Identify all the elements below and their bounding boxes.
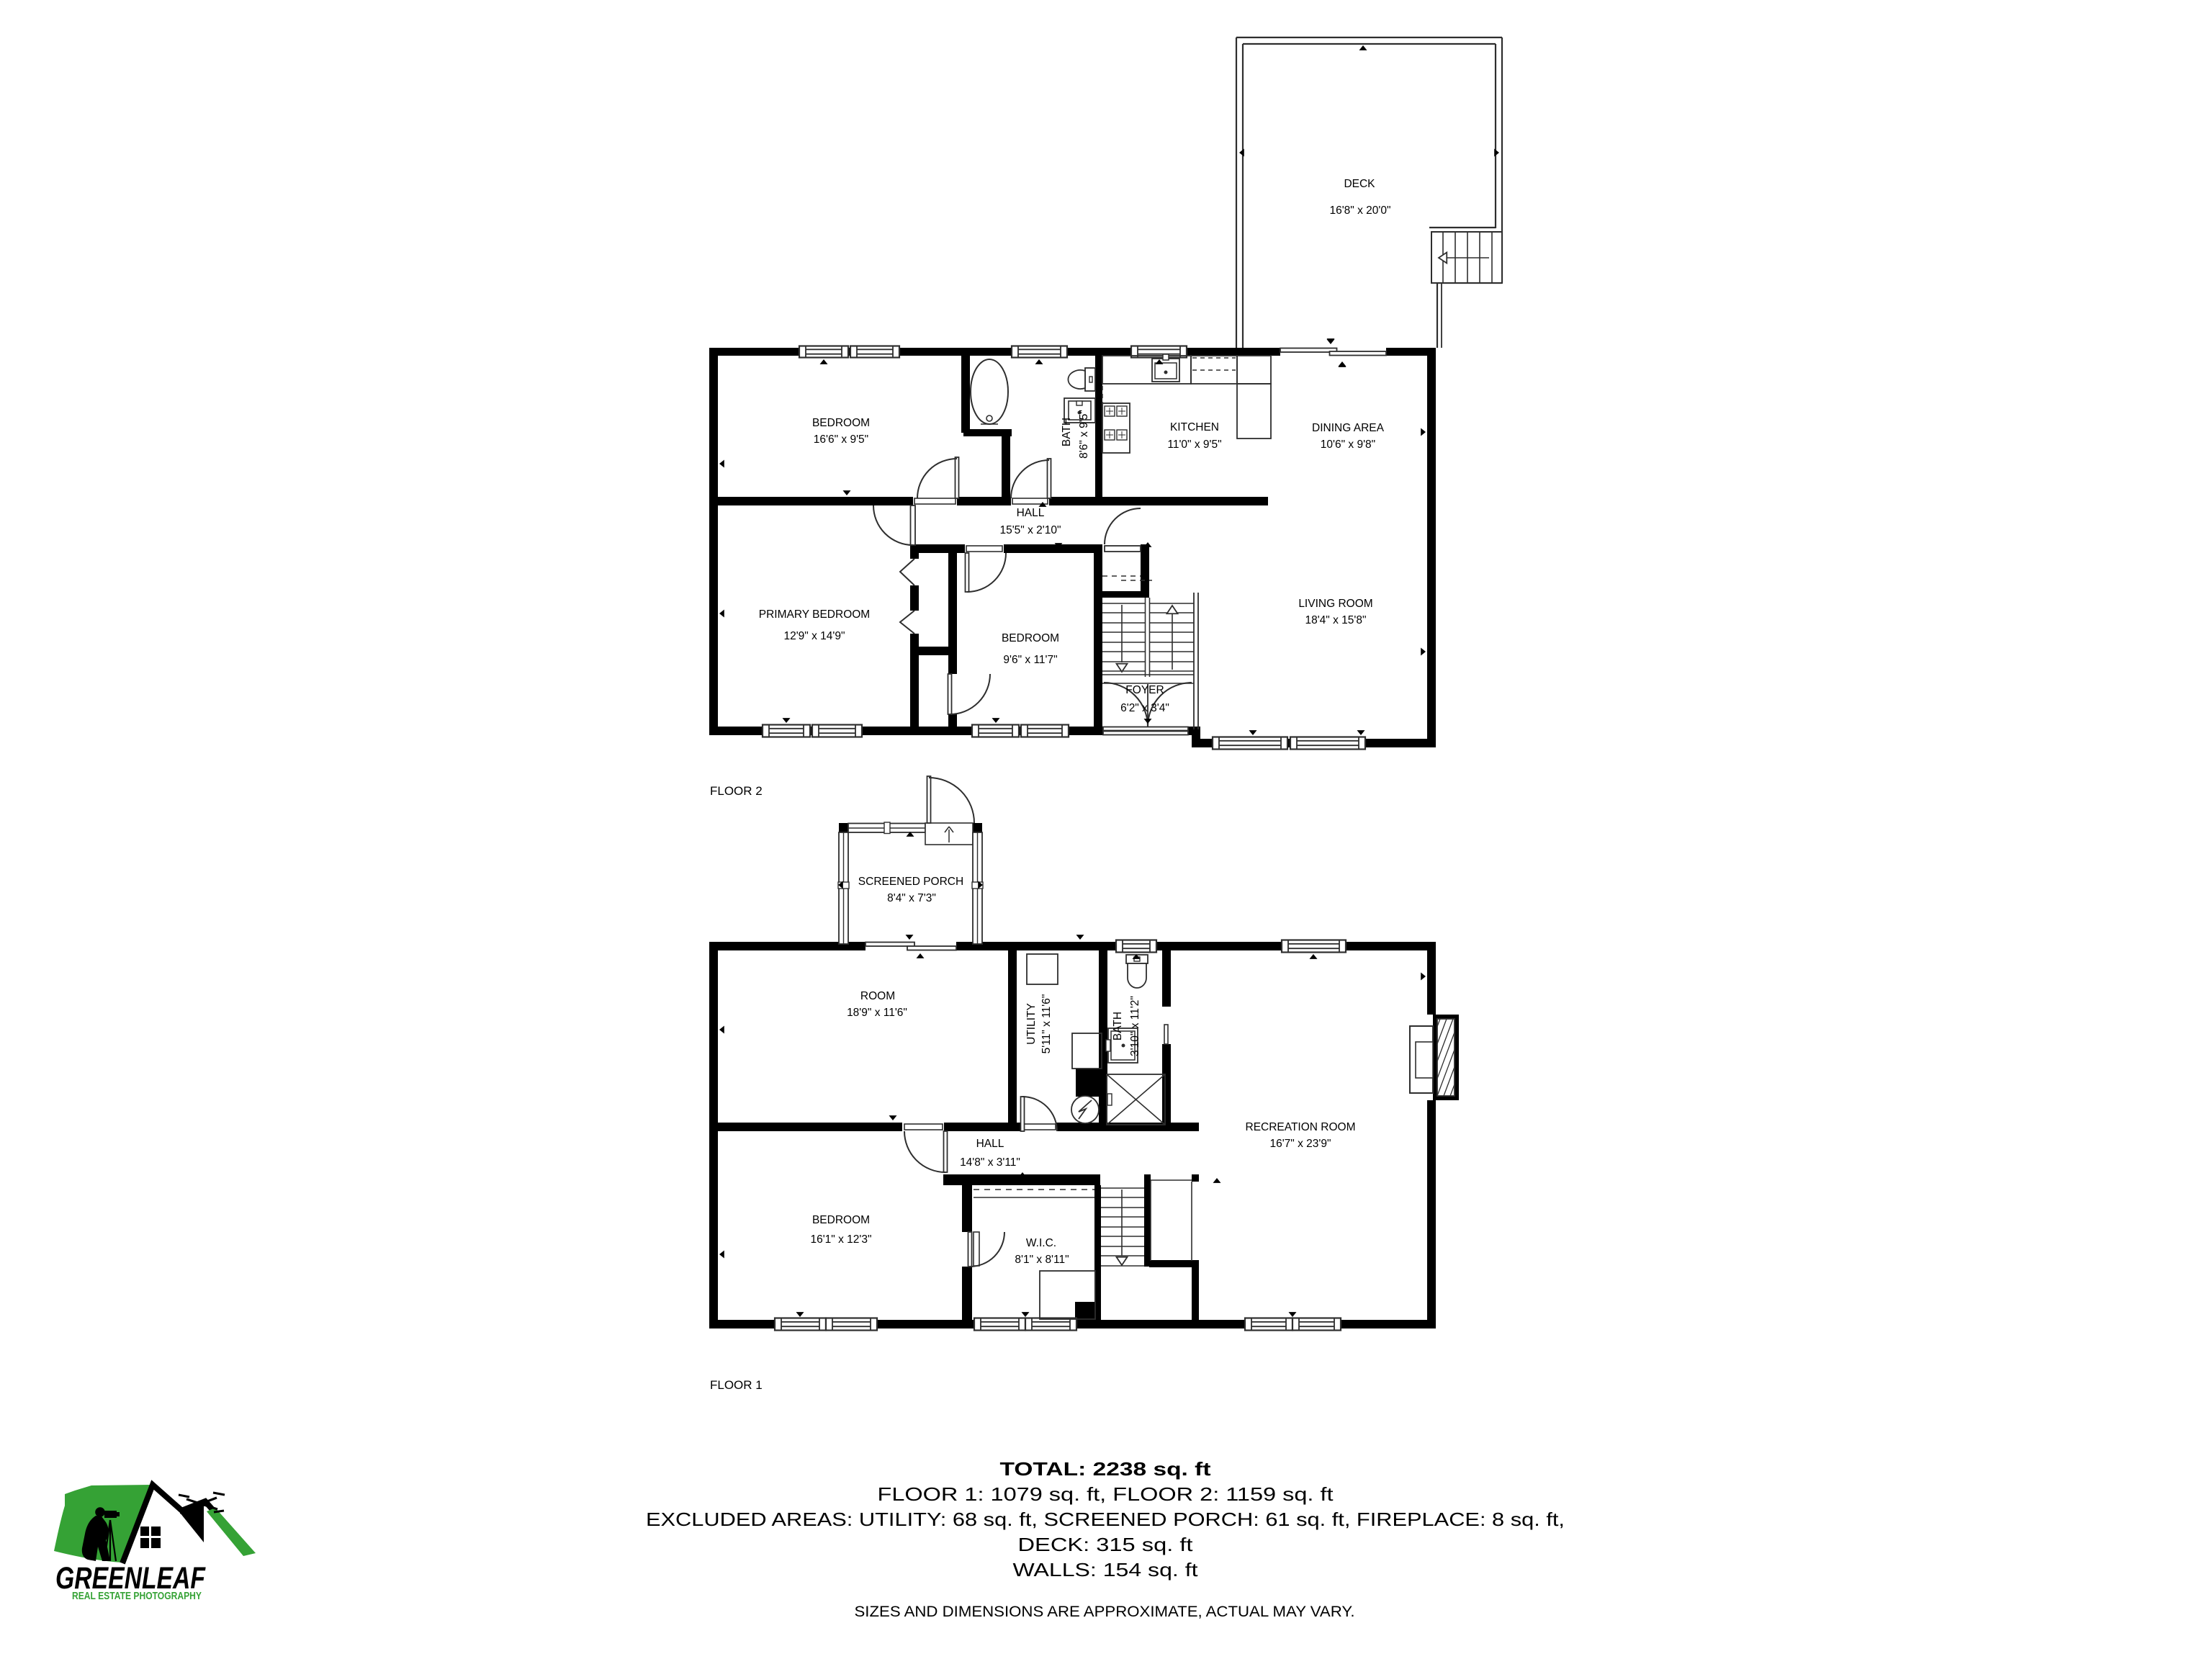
svg-text:16'1" x 12'3": 16'1" x 12'3" [810, 1233, 871, 1246]
svg-text:5'11" x 11'6": 5'11" x 11'6" [1040, 994, 1053, 1054]
svg-text:FLOOR 1: 1079 sq. ft, FLOOR 2:: FLOOR 1: 1079 sq. ft, FLOOR 2: 1159 sq. … [878, 1483, 1334, 1505]
svg-text:8'4" x 7'3": 8'4" x 7'3" [887, 892, 936, 904]
svg-text:HALL: HALL [976, 1138, 1004, 1150]
svg-text:6'2" x 3'4": 6'2" x 3'4" [1120, 702, 1169, 714]
svg-text:BEDROOM: BEDROOM [1002, 632, 1059, 644]
svg-text:BATH: BATH [1112, 1012, 1124, 1040]
svg-text:12'9" x 14'9": 12'9" x 14'9" [783, 630, 845, 642]
svg-text:PRIMARY BEDROOM: PRIMARY BEDROOM [759, 608, 870, 621]
svg-text:WALLS: 154 sq. ft: WALLS: 154 sq. ft [1013, 1559, 1199, 1581]
svg-text:DECK: 315 sq. ft: DECK: 315 sq. ft [1018, 1534, 1194, 1555]
svg-text:16'8" x 20'0": 16'8" x 20'0" [1329, 204, 1390, 217]
svg-text:16'6" x 9'5": 16'6" x 9'5" [814, 433, 868, 446]
svg-text:9'6" x 11'7": 9'6" x 11'7" [1003, 654, 1057, 666]
svg-text:DECK: DECK [1344, 178, 1375, 190]
svg-text:15'5" x 2'10": 15'5" x 2'10" [999, 524, 1061, 536]
svg-text:BATH: BATH [1061, 418, 1073, 446]
svg-text:TOTAL: 2238 sq. ft: TOTAL: 2238 sq. ft [1000, 1458, 1211, 1480]
svg-text:LIVING ROOM: LIVING ROOM [1298, 598, 1372, 610]
svg-text:RECREATION ROOM: RECREATION ROOM [1246, 1121, 1356, 1133]
svg-text:BEDROOM: BEDROOM [812, 1214, 870, 1226]
svg-text:FOYER: FOYER [1125, 684, 1164, 696]
svg-text:SIZES AND DIMENSIONS ARE APPRO: SIZES AND DIMENSIONS ARE APPROXIMATE, AC… [855, 1604, 1355, 1620]
svg-text:8'1" x 8'11": 8'1" x 8'11" [1015, 1254, 1069, 1266]
svg-text:REAL ESTATE PHOTOGRAPHY: REAL ESTATE PHOTOGRAPHY [72, 1591, 202, 1602]
svg-text:FLOOR 2: FLOOR 2 [710, 784, 763, 798]
svg-text:18'9" x 11'6": 18'9" x 11'6" [847, 1007, 907, 1019]
svg-text:EXCLUDED AREAS: UTILITY: 68 sq: EXCLUDED AREAS: UTILITY: 68 sq. ft, SCRE… [646, 1509, 1565, 1530]
svg-text:SCREENED PORCH: SCREENED PORCH [858, 876, 963, 888]
svg-text:HALL: HALL [1017, 507, 1045, 519]
svg-text:UTILITY: UTILITY [1025, 1003, 1038, 1045]
svg-text:FLOOR 1: FLOOR 1 [710, 1378, 763, 1392]
svg-text:14'8" x 3'11": 14'8" x 3'11" [960, 1156, 1020, 1169]
svg-text:10'6" x 9'8": 10'6" x 9'8" [1321, 439, 1375, 451]
svg-text:16'7" x 23'9": 16'7" x 23'9" [1269, 1138, 1331, 1150]
svg-text:ROOM: ROOM [860, 990, 895, 1002]
svg-text:8'6" x 9'5": 8'6" x 9'5" [1078, 410, 1090, 459]
svg-text:W.I.C.: W.I.C. [1026, 1237, 1056, 1249]
svg-text:18'4" x 15'8": 18'4" x 15'8" [1305, 614, 1366, 626]
svg-text:3'10" x 11'2": 3'10" x 11'2" [1129, 996, 1141, 1056]
svg-text:11'0" x 9'5": 11'0" x 9'5" [1167, 439, 1221, 451]
svg-text:KITCHEN: KITCHEN [1170, 421, 1219, 433]
svg-text:BEDROOM: BEDROOM [812, 417, 870, 429]
svg-text:DINING AREA: DINING AREA [1312, 422, 1385, 434]
